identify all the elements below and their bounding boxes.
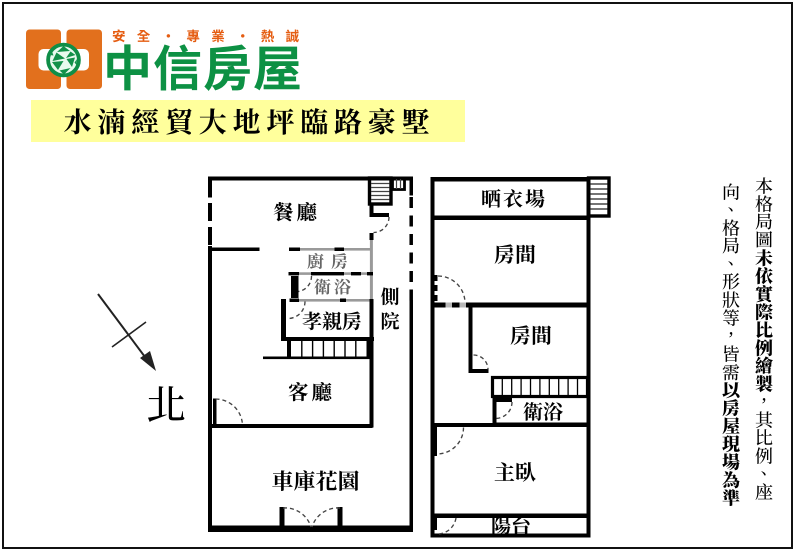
svg-text:餐廳: 餐廳 (273, 196, 320, 226)
svg-text:車庫花園: 車庫花園 (271, 465, 359, 496)
svg-text:廚房: 廚房 (307, 248, 355, 273)
svg-text:房間: 房間 (494, 239, 536, 269)
svg-text:客廳: 客廳 (288, 376, 335, 406)
svg-text:衛浴: 衛浴 (314, 273, 354, 298)
svg-text:陽台: 陽台 (491, 510, 531, 539)
svg-text:院: 院 (380, 307, 399, 334)
svg-text:孝親房: 孝親房 (302, 306, 362, 335)
svg-text:房間: 房間 (510, 320, 552, 350)
svg-text:主臥: 主臥 (494, 457, 536, 487)
svg-text:衛浴: 衛浴 (523, 396, 563, 425)
svg-text:側: 側 (380, 283, 399, 310)
svg-text:晒衣場: 晒衣場 (481, 183, 547, 212)
